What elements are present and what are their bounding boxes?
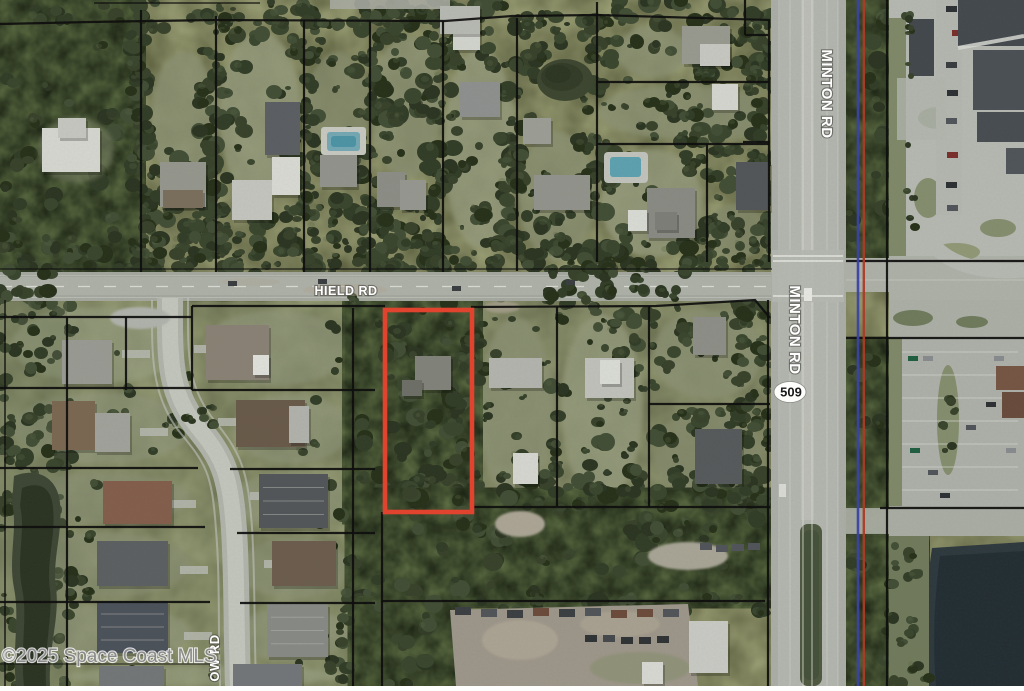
svg-text:HIELD RD: HIELD RD [314, 284, 377, 298]
svg-text:©2025 Space Coast MLS: ©2025 Space Coast MLS [2, 646, 217, 667]
svg-text:MINTON RD: MINTON RD [786, 285, 803, 374]
svg-text:MINTON RD: MINTON RD [818, 49, 835, 138]
svg-text:509: 509 [780, 385, 802, 400]
